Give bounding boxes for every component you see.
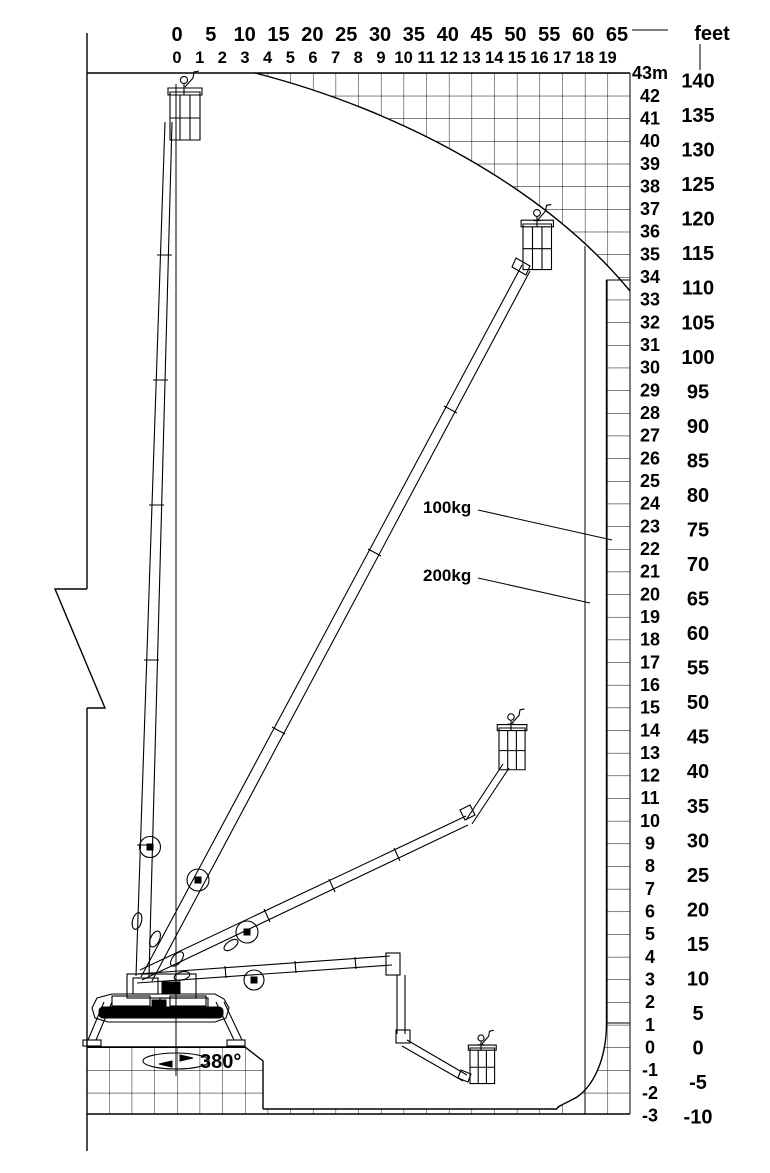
right-feet-tick: 100	[681, 347, 714, 369]
right-meter-tick: 41	[640, 108, 660, 128]
top-meter-tick: 19	[598, 49, 616, 67]
right-meter-tick: 43m	[632, 63, 668, 83]
right-meter-tick: 21	[640, 562, 660, 582]
right-feet-tick: 130	[681, 140, 714, 162]
top-feet-tick: 35	[403, 24, 425, 46]
right-meter-tick: 30	[640, 358, 660, 378]
capacity-label-200kg: 200kg	[423, 566, 471, 585]
right-feet-tick: 115	[682, 243, 714, 265]
top-meter-tick: 3	[240, 49, 249, 67]
right-feet-tick: 95	[687, 381, 709, 403]
top-feet-tick: 0	[171, 24, 182, 46]
top-axis-feet: 05101520253035404550556065	[171, 24, 628, 46]
basket-upper-right	[521, 220, 553, 269]
right-feet-tick: 120	[681, 209, 714, 231]
right-feet-tick: 135	[681, 105, 714, 127]
right-meter-tick: 6	[645, 902, 655, 922]
right-meter-tick: 35	[640, 244, 660, 264]
right-meter-tick: 33	[640, 290, 660, 310]
right-meter-tick: 7	[645, 879, 655, 899]
top-meter-tick: 5	[286, 49, 295, 67]
right-feet-tick: 80	[687, 485, 709, 507]
right-feet-tick: 25	[687, 865, 709, 887]
top-meter-tick: 17	[553, 49, 571, 67]
right-axis-feet: 1401351301251201151101051009590858075706…	[681, 71, 714, 1129]
right-feet-tick: 85	[687, 450, 709, 472]
capacity-labels: 100kg 200kg	[423, 498, 612, 603]
right-meter-tick: 25	[640, 471, 660, 491]
right-feet-tick: 90	[687, 416, 709, 438]
right-feet-tick: 105	[681, 312, 714, 334]
top-meter-tick: 10	[394, 49, 412, 67]
right-meter-tick: 40	[640, 131, 660, 151]
leader-200kg	[478, 578, 590, 603]
right-meter-tick: -2	[642, 1083, 658, 1103]
right-feet-tick: 65	[687, 589, 709, 611]
right-meter-tick: 38	[640, 176, 660, 196]
right-meter-tick: 16	[640, 675, 660, 695]
top-feet-tick: 40	[437, 24, 459, 46]
worker-top	[180, 71, 199, 95]
right-meter-tick: 32	[640, 312, 660, 332]
top-feet-tick: 55	[538, 24, 560, 46]
top-meter-tick: 18	[576, 49, 594, 67]
right-meter-tick: 20	[640, 584, 660, 604]
right-meter-tick: 2	[645, 992, 655, 1012]
top-meter-tick: 9	[376, 49, 385, 67]
right-meter-tick: 1	[645, 1015, 655, 1035]
right-feet-tick: -10	[684, 1107, 713, 1129]
right-feet-tick: 50	[687, 692, 709, 714]
right-feet-tick: 55	[687, 658, 709, 680]
right-meter-tick: 22	[640, 539, 660, 559]
top-meter-tick: 16	[530, 49, 548, 67]
top-feet-tick: 15	[267, 24, 289, 46]
right-meter-tick: -1	[642, 1060, 658, 1080]
right-feet-tick: 75	[687, 519, 709, 541]
right-meter-tick: 39	[640, 154, 660, 174]
envelope-diagram: 100kg 200kg	[0, 0, 770, 1173]
top-meter-tick: 12	[440, 49, 458, 67]
boom-steep	[141, 258, 530, 981]
right-feet-tick: 60	[687, 623, 709, 645]
right-meter-tick: 28	[640, 403, 660, 423]
right-feet-tick: 5	[692, 1003, 703, 1025]
top-meter-tick: 8	[354, 49, 363, 67]
capacity-label-100kg: 100kg	[423, 498, 471, 517]
right-meter-tick: 11	[640, 788, 659, 808]
right-meter-tick: 23	[640, 516, 660, 536]
right-feet-tick: 140	[681, 71, 714, 93]
feet-unit-label: feet	[694, 23, 730, 45]
top-feet-tick: 5	[205, 24, 216, 46]
right-feet-tick: 10	[687, 968, 709, 990]
right-meter-tick: 8	[645, 856, 655, 876]
right-meter-tick: 18	[640, 630, 660, 650]
right-meter-tick: 29	[640, 380, 660, 400]
grid-region-right-column	[607, 280, 631, 1023]
top-meter-tick: 14	[485, 49, 504, 67]
grid-region-ground-band	[263, 1109, 557, 1114]
right-feet-tick: 125	[681, 174, 714, 196]
top-meter-tick: 0	[172, 49, 181, 67]
top-meter-tick: 2	[218, 49, 227, 67]
baskets	[168, 71, 553, 1084]
right-meter-tick: 27	[640, 426, 660, 446]
right-meter-tick: 36	[640, 222, 660, 242]
chassis	[83, 974, 245, 1046]
right-feet-tick: 15	[687, 934, 709, 956]
right-meter-tick: 24	[640, 494, 660, 514]
diagram-canvas: 100kg 200kg	[0, 0, 770, 1173]
rotation-label: 380°	[200, 1051, 241, 1073]
right-axis-meters: 43m4241403938373635343332313029282726252…	[632, 63, 668, 1125]
basket-mid-right	[497, 725, 527, 770]
right-feet-tick: 0	[692, 1038, 703, 1060]
right-feet-tick: 45	[687, 727, 709, 749]
top-feet-tick: 25	[335, 24, 357, 46]
right-meter-tick: 34	[640, 267, 660, 287]
right-feet-tick: 70	[687, 554, 709, 576]
top-meter-tick: 4	[263, 49, 273, 67]
right-feet-tick: 35	[687, 796, 709, 818]
right-meter-tick: 5	[645, 924, 655, 944]
right-feet-tick: 30	[687, 830, 709, 852]
top-feet-tick: 30	[369, 24, 391, 46]
right-feet-tick: 110	[682, 278, 714, 300]
right-meter-tick: 13	[640, 743, 660, 763]
right-meter-tick: 10	[640, 811, 660, 831]
basket-below-grade	[468, 1045, 496, 1083]
top-axis-meters: 012345678910111213141516171819	[172, 49, 616, 67]
right-meter-tick: 14	[640, 720, 660, 740]
right-meter-tick: 26	[640, 448, 660, 468]
grid-region-top-right	[255, 73, 630, 291]
right-meter-tick: 19	[640, 607, 660, 627]
right-meter-tick: 9	[645, 834, 655, 854]
envelope-right-100kg	[557, 280, 607, 1109]
right-meter-tick: 15	[640, 698, 660, 718]
right-feet-tick: -5	[689, 1072, 707, 1094]
boom-mid	[140, 764, 509, 980]
frame-left-line-with-break	[55, 33, 105, 1151]
top-feet-tick: 45	[470, 24, 492, 46]
worker-mid-right	[507, 709, 524, 731]
top-feet-tick: 60	[572, 24, 594, 46]
top-meter-tick: 13	[462, 49, 480, 67]
right-meter-tick: 12	[640, 766, 660, 786]
right-meter-tick: 37	[640, 199, 660, 219]
top-meter-tick: 15	[508, 49, 526, 67]
right-meter-tick: -3	[642, 1105, 658, 1125]
top-meter-tick: 1	[195, 49, 204, 67]
right-feet-tick: 40	[687, 761, 709, 783]
top-feet-tick: 20	[301, 24, 323, 46]
right-meter-tick: 42	[640, 86, 660, 106]
top-meter-tick: 11	[418, 49, 435, 67]
right-feet-tick: 20	[687, 899, 709, 921]
right-meter-tick: 4	[645, 947, 655, 967]
grid-region-bottom-right	[557, 1023, 630, 1114]
top-feet-tick: 10	[234, 24, 256, 46]
top-meter-tick: 6	[308, 49, 317, 67]
right-meter-tick: 3	[645, 970, 655, 990]
right-meter-tick: 0	[645, 1038, 655, 1058]
top-meter-tick: 7	[331, 49, 340, 67]
basket-top	[168, 88, 202, 140]
boom-vertical	[136, 122, 172, 976]
top-feet-tick: 50	[504, 24, 526, 46]
leader-100kg	[478, 510, 612, 540]
top-feet-tick: 65	[606, 24, 628, 46]
right-meter-tick: 17	[640, 652, 660, 672]
right-meter-tick: 31	[640, 335, 660, 355]
